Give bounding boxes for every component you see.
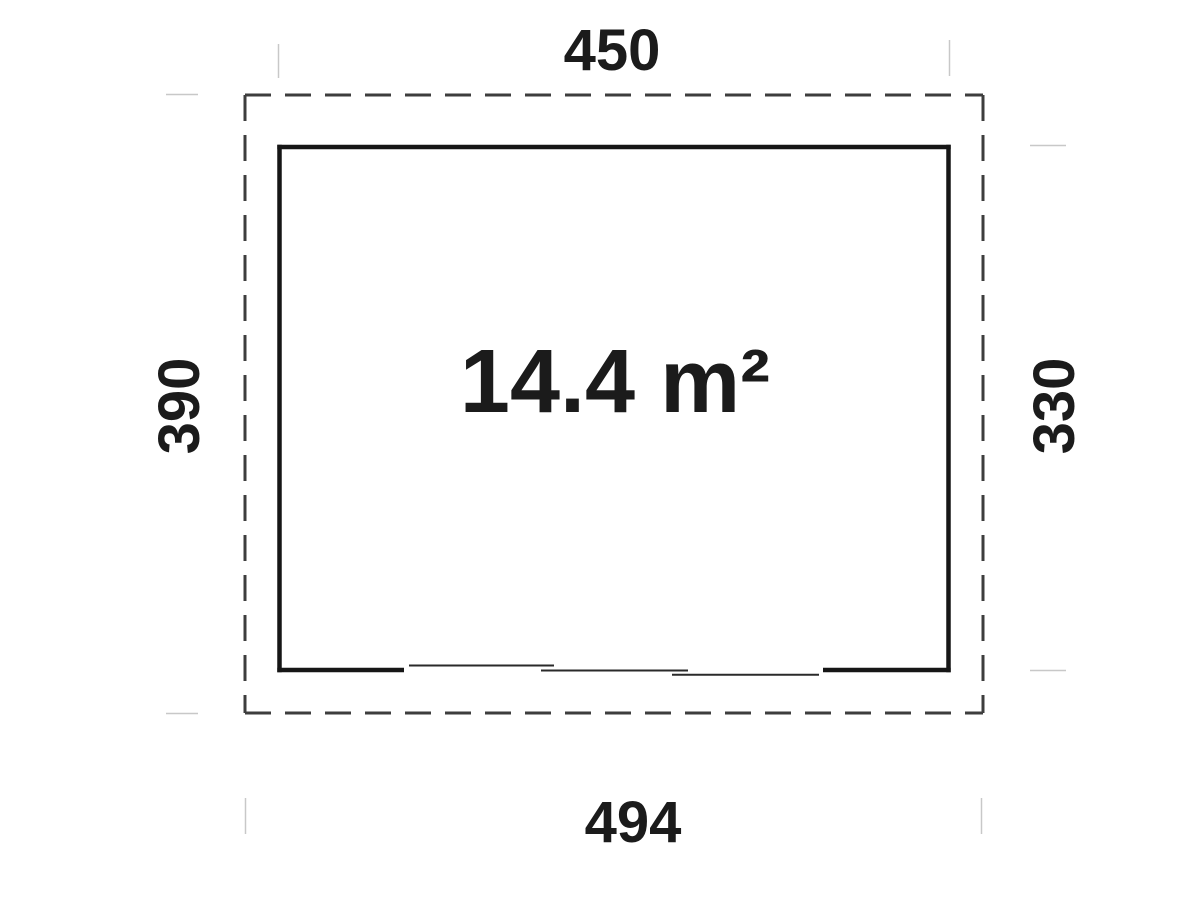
dimension-label-top: 450 [512,22,712,80]
dimension-label-right: 330 [1026,306,1084,506]
area-label: 14.4 m² [315,337,915,427]
dimension-label-bottom: 494 [533,794,733,852]
floor-plan-page: 450 390 330 494 14.4 m² [0,0,1200,900]
dimension-label-left: 390 [151,306,209,506]
